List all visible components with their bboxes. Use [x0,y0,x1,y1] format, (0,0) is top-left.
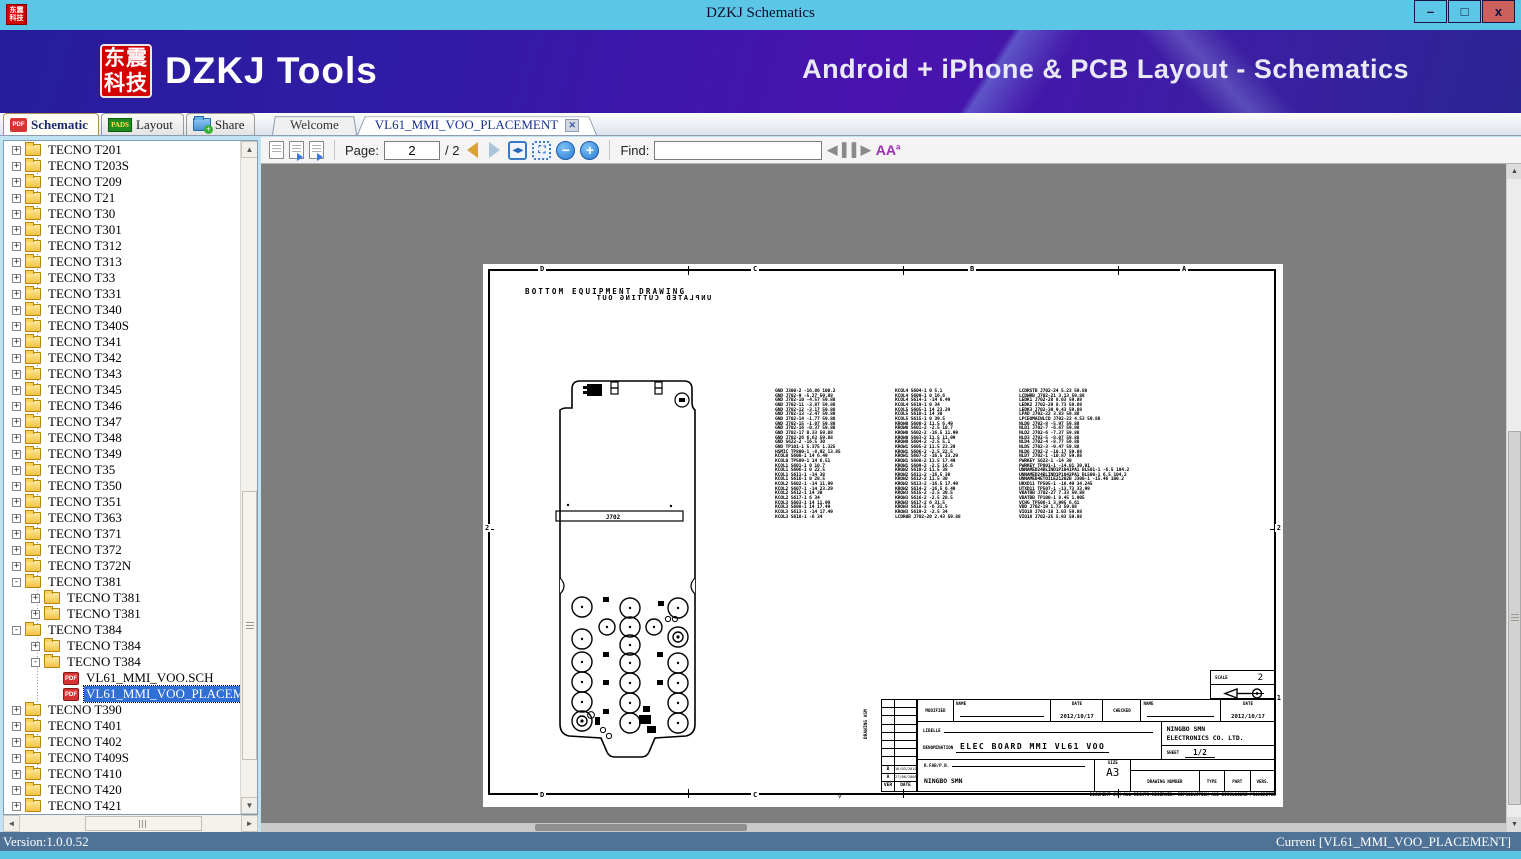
tree-item-label: TECNO T348 [46,430,124,446]
statusbar: Version:1.0.0.52 Current [VL61_MMI_VOO_P… [0,832,1521,851]
tree-expand-icon[interactable]: + [12,450,21,459]
folder-icon [25,304,41,316]
tab-schematic[interactable]: PDF Schematic [3,113,99,135]
tree-expand-icon[interactable]: + [12,386,21,395]
tree-expand-icon[interactable]: + [31,642,40,651]
tree-item-label: TECNO T384 [65,654,143,670]
tree-item[interactable]: +TECNO T313 [4,254,240,270]
titleblock-side-label: DRAWING ASM [864,709,869,739]
scale-value: 2 [1258,673,1263,683]
folder-icon [25,448,41,460]
rev-cell [882,749,895,756]
zone-label: C [751,265,759,273]
rev-cell [895,757,916,764]
titlebar: 东震科技 DZKJ Schematics – □ x [0,0,1521,30]
copy-page-icon[interactable] [289,141,304,159]
tree-item[interactable]: +TECNO T410 [4,766,240,782]
tree-item-label: TECNO T349 [46,446,124,462]
tree-item-label: TECNO T341 [46,334,124,350]
tree-collapse-icon[interactable]: - [12,578,21,587]
tree-item-label: TECNO T331 [46,286,124,302]
tree-item-label: TECNO T421 [46,798,124,814]
folder-icon [25,704,41,716]
tree-expand-icon[interactable]: + [12,354,21,363]
zone-label: 2 [483,524,491,532]
tree-expand-icon[interactable]: + [12,210,21,219]
tree-item[interactable]: +TECNO T341 [4,334,240,350]
tree-item[interactable]: +TECNO T384 [4,638,240,654]
pdf-toolbar: Page: / 2 ◂▸ ⛶ − + Find: ◀▐ ▌▶ AAa [261,137,1521,164]
rev-date: 16/03/2010 [895,766,916,773]
tree-item[interactable]: +TECNO T33 [4,270,240,286]
tree-item-label: VL61_MMI_VOO.SCH [84,670,215,686]
tree-item[interactable]: -TECNO T384 [4,622,240,638]
company-line1: NINGBO SMN [1167,725,1205,733]
title-block: B16/03/2010A27/08/2008VERDATE MODIFIED N… [881,699,1276,792]
tree-item[interactable]: +TECNO T340 [4,302,240,318]
viewer-horizontal-scrollbar[interactable] [261,823,1506,832]
tree-item[interactable]: +TECNO T390 [4,702,240,718]
banner: 东震科技 DZKJ Tools Android + iPhone & PCB L… [0,30,1521,113]
viewer-vscroll-thumb[interactable] [1508,431,1521,805]
zoom-in-button[interactable]: + [580,141,599,160]
company-line2: ELECTRONICS CO. LTD. [1167,734,1244,742]
tree-item-label: TECNO T201 [46,142,124,158]
revision-empty-row [882,749,916,757]
tree-item-label: TECNO T381 [46,574,124,590]
tree-item[interactable]: +TECNO T350 [4,478,240,494]
folder-icon [25,800,41,812]
zone-label: 1 [1275,694,1283,702]
tab-share-label: Share [215,117,245,133]
revision-row: A27/08/2008 [882,774,916,782]
tree-item[interactable]: +TECNO T340S [4,318,240,334]
rev-cell [895,716,916,723]
tree-expand-icon[interactable]: + [12,498,21,507]
checked-label: CHECKED [1113,708,1131,713]
tree-item-label: TECNO T340 [46,302,124,318]
date-label: DATE [1053,701,1100,706]
tree-expand-icon[interactable]: + [12,482,21,491]
folder-icon [25,768,41,780]
center-mark-icon: ▽ [837,791,842,801]
tree-scroll-up-icon[interactable]: ▲ [241,141,258,158]
tree-expand-icon[interactable]: + [12,530,21,539]
modified-label: MODIFIED [925,708,945,713]
tree-item-label: TECNO T312 [46,238,124,254]
folder-icon [25,576,41,588]
zone-label: B [968,265,976,273]
tree-rows: +TECNO T201+TECNO T203S+TECNO T209+TECNO… [4,142,240,814]
tree-item-label: TECNO T381 [65,590,143,606]
tree-item[interactable]: +TECNO T347 [4,414,240,430]
tree-expand-icon[interactable]: + [12,242,21,251]
tree-expand-icon[interactable]: + [12,434,21,443]
tree-item-label: TECNO T340S [46,318,131,334]
tree-item-label: TECNO T381 [65,606,143,622]
viewer-scroll-up-icon[interactable]: ▲ [1507,164,1521,179]
tree-item-label: TECNO T347 [46,414,124,430]
denomination-label: DENOMINATION [923,745,953,750]
placement-line: LCDR0B J702-20 2.43 59.88 [895,516,961,521]
page-number-input[interactable] [384,141,440,160]
tree-expand-icon[interactable]: + [12,802,21,811]
tree-item[interactable]: +TECNO T345 [4,382,240,398]
find-previous-icon[interactable]: ◀▐ [827,142,846,158]
rev-cell [895,708,916,715]
folder-icon [25,752,41,764]
tree-item[interactable]: +TECNO T346 [4,398,240,414]
folder-icon [25,224,41,236]
rfab-label: R.FAB/P.N. [924,763,949,768]
version-text: Version:1.0.0.52 [3,834,89,850]
rev-cell [882,725,895,732]
tree-item[interactable]: +TECNO T21 [4,190,240,206]
doc-tab-label: VL61_MMI_VOO_PLACEMENT [375,117,558,133]
tree-expand-icon[interactable]: + [12,178,21,187]
tab-schematic-label: Schematic [31,117,88,133]
tree-item-label: TECNO T209 [46,174,124,190]
tree-expand-icon[interactable]: + [12,258,21,267]
revision-empty-row [882,700,916,708]
tree-item-label: TECNO T203S [46,158,131,174]
revision-header-row: VERDATE [882,782,916,791]
tree-item-label: TECNO T384 [46,622,124,638]
tree-expand-icon[interactable]: + [12,754,21,763]
tree-horizontal-scrollbar[interactable]: ◄ ► [3,815,258,832]
folder-icon [25,240,41,252]
tree-item-label: TECNO T342 [46,350,124,366]
tree-expand-icon[interactable]: + [12,418,21,427]
tree-item[interactable]: +TECNO T209 [4,174,240,190]
tree-expand-icon[interactable]: + [31,610,40,619]
revision-empty-row [882,741,916,749]
doc-tab-welcome[interactable]: Welcome [272,115,357,135]
folder-icon [25,736,41,748]
tree-scroll-right-icon[interactable]: ► [241,815,258,832]
tree-expand-icon[interactable]: + [12,290,21,299]
drawing-page: DCBADC221 BOTTOM EQUIPMENT DRAWING UNPLA… [483,264,1283,807]
rev-cell [882,708,895,715]
tree-item-label: TECNO T363 [46,510,124,526]
rev-cell [895,749,916,756]
folder-icon [25,144,41,156]
zone-label: D [538,265,546,273]
tree-item-label: TECNO T35 [46,462,117,478]
folder-icon [25,336,41,348]
tree-item-label: TECNO T21 [46,190,117,206]
tree-item[interactable]: +TECNO T349 [4,446,240,462]
snapshot-page-icon[interactable] [309,141,324,159]
folder-icon [25,560,41,572]
tree-item-label: TECNO T30 [46,206,117,222]
bottom-strip [0,851,1521,859]
tree-item-label: TECNO T384 [65,638,143,654]
sheet-value: 1/2 [1185,748,1215,758]
brand-tagline: Android + iPhone & PCB Layout - Schemati… [802,54,1409,85]
folder-icon [25,432,41,444]
tree-item-label: TECNO T33 [46,270,117,286]
find-input[interactable] [654,141,822,160]
doc-tabs: WelcomeVL61_MMI_VOO_PLACEMENT✕ [272,115,597,135]
tree-item[interactable]: +TECNO T203S [4,158,240,174]
rev-cell [882,741,895,748]
folder-icon [25,400,41,412]
tree-item[interactable]: PDFVL61_MMI_VOO_PLACEMENT [4,686,240,702]
tree-expand-icon[interactable]: + [12,514,21,523]
tree-item[interactable]: +TECNO T201 [4,142,240,158]
placement-column: GND J300-2 -16.86 100.2GND J702-9 -5.27 … [775,390,841,520]
minimize-button[interactable]: – [1414,0,1447,23]
rev-cell [882,733,895,740]
vers-label: VERS. [1250,771,1275,791]
tree-item-label: TECNO T343 [46,366,124,382]
folder-icon [25,256,41,268]
drawing-mirrored-title: UNPLATED CUTTING OUT [595,294,711,302]
tree-expand-icon[interactable]: + [12,322,21,331]
pdf-file-icon: PDF [63,672,79,685]
folder-icon [25,416,41,428]
folder-icon [25,320,41,332]
tree-item-label: TECNO T420 [46,782,124,798]
tree-item[interactable]: +TECNO T30 [4,206,240,222]
rev-cell [882,757,895,764]
part-label: PART [1224,771,1249,791]
tree-item[interactable]: +TECNO T409S [4,750,240,766]
rev-cell [882,716,895,723]
tree-expand-icon[interactable]: + [12,162,21,171]
scale-box: SCALE 2 [1210,670,1276,699]
tree-item[interactable]: +TECNO T312 [4,238,240,254]
folder-icon [25,176,41,188]
revision-row: B16/03/2010 [882,766,916,774]
tree-expand-icon[interactable]: + [12,274,21,283]
placement-line: KCOL3 S618-1 -6 34 [775,516,841,521]
tree-item-label: TECNO T313 [46,254,124,270]
tree-item-label: TECNO T351 [46,494,124,510]
rev-cell [895,725,916,732]
pdf-file-icon: PDF [63,688,79,701]
tree-item[interactable]: +TECNO T372 [4,542,240,558]
close-tab-icon[interactable]: ✕ [565,119,579,132]
folder-icon [25,496,41,508]
size-label: SIZE [1108,760,1118,765]
tree-item[interactable]: +TECNO T35 [4,462,240,478]
tree-item[interactable]: PDFVL61_MMI_VOO.SCH [4,670,240,686]
tree-expand-icon[interactable]: + [12,466,21,475]
zone-label: D [538,791,546,799]
folder-icon [25,528,41,540]
folder-icon [25,544,41,556]
folder-icon [25,512,41,524]
prev-page-button[interactable] [467,142,478,158]
revision-empty-row [882,708,916,716]
viewer-scroll-down-icon[interactable]: ▼ [1507,817,1521,832]
tree-item-label: TECNO T301 [46,222,124,238]
tab-share[interactable]: Share [186,113,256,135]
tree-item[interactable]: +TECNO T381 [4,606,240,622]
folder-icon [25,192,41,204]
revision-empty-row [882,733,916,741]
pads-icon: PADS [108,118,132,132]
page-total: / 2 [445,143,459,158]
schematic-tree: +TECNO T201+TECNO T203S+TECNO T209+TECNO… [3,140,258,815]
tree-expand-icon[interactable]: + [12,786,21,795]
tree-item[interactable]: +TECNO T420 [4,782,240,798]
find-next-icon[interactable]: ▌▶ [852,142,871,158]
tab-layout-label: Layout [136,117,173,133]
zone-label: 2 [1275,524,1283,532]
tree-collapse-icon[interactable]: - [12,626,21,635]
tree-item[interactable]: -TECNO T381 [4,574,240,590]
tree-item[interactable]: +TECNO T421 [4,798,240,814]
tree-expand-icon[interactable]: + [12,546,21,555]
rev-date: 27/08/2008 [895,774,916,781]
tree-item[interactable]: +TECNO T301 [4,222,240,238]
folder-icon [25,624,41,636]
folder-icon [44,656,60,668]
tree-expand-icon[interactable]: + [12,770,21,779]
viewer-hscroll-thumb[interactable] [535,824,747,831]
zone-label: A [1180,265,1188,273]
tree-expand-icon[interactable]: + [12,338,21,347]
sidebar: +TECNO T201+TECNO T203S+TECNO T209+TECNO… [0,137,261,832]
tree-item[interactable]: -TECNO T384 [4,654,240,670]
tree-item[interactable]: +TECNO T342 [4,350,240,366]
drawing-number-label: DRAWING NUMBER [1131,771,1198,791]
denomination-value: ELEC BOARD MMI VL61 VOO [956,742,1109,753]
tree-item[interactable]: +TECNO T372N [4,558,240,574]
tab-layout[interactable]: PADS Layout [101,113,184,135]
checked-date: 2012/10/17 [1223,714,1273,720]
tree-item-label: TECNO T346 [46,398,124,414]
copyright-note: DOCUMENT SMN ALL RIGHTS RESERVED. REPROD… [881,793,1276,798]
folder-icon [25,352,41,364]
folder-icon [25,720,41,732]
placement-line: VIO18 J702-25 5.93 59.88 [1019,516,1129,521]
revision-table: B16/03/2010A27/08/2008VERDATE [881,699,917,792]
find-label: Find: [620,143,649,158]
maximize-button[interactable]: □ [1448,0,1481,23]
doc-tab-vl61_mmi_voo_placement[interactable]: VL61_MMI_VOO_PLACEMENT✕ [357,115,597,135]
fit-page-button[interactable]: ⛶ [532,141,551,160]
pdf-icon: PDF [10,118,27,132]
svg-text:J702: J702 [606,514,621,521]
revision-empty-row [882,716,916,724]
tree-expand-icon[interactable]: + [12,738,21,747]
folder-icon [44,592,60,604]
tree-expand-icon[interactable]: + [12,562,21,571]
tree-item-label: TECNO T410 [46,766,124,782]
folder-icon [25,288,41,300]
tree-expand-icon[interactable]: + [12,706,21,715]
size-value: A3 [1106,766,1119,779]
rev-letter: B [882,766,895,773]
tree-item-label: TECNO T409S [46,750,131,766]
fit-width-button[interactable]: ◂▸ [508,141,527,160]
tree-item-label: TECNO T371 [46,526,124,542]
tree-item[interactable]: +TECNO T402 [4,734,240,750]
brand-logo-icon: 东震科技 [100,44,152,98]
font-size-icon[interactable]: AAa [876,142,901,158]
window-title: DZKJ Schematics [0,5,1521,22]
zone-label: C [751,791,759,799]
date-col-label: DATE [895,782,916,791]
tree-vertical-scrollbar[interactable]: ▲ ▼ [240,141,257,814]
modified-date: 2012/10/17 [1053,714,1100,720]
revision-empty-row [882,757,916,765]
folder-icon [25,160,41,172]
brand-logo-line1: 东震 [104,47,148,70]
rev-cell [895,700,916,707]
ver-label: VER [882,782,895,791]
tree-item-label: TECNO T350 [46,478,124,494]
tree-expand-icon[interactable]: + [12,146,21,155]
folder-icon [25,464,41,476]
page-label: Page: [345,143,379,158]
folder-icon [25,272,41,284]
tree-item[interactable]: +TECNO T343 [4,366,240,382]
tree-expand-icon[interactable]: + [12,370,21,379]
next-page-button[interactable] [489,142,500,158]
tree-expand-icon[interactable]: + [12,194,21,203]
folder-icon [25,784,41,796]
app-window: 东震科技 DZKJ Schematics – □ x 东震科技 DZKJ Too… [0,0,1521,859]
tree-item[interactable]: +TECNO T331 [4,286,240,302]
tree-item[interactable]: +TECNO T351 [4,494,240,510]
tree-scroll-thumb[interactable] [242,491,257,760]
tree-item[interactable]: +TECNO T348 [4,430,240,446]
share-folder-icon [193,118,211,131]
tree-item-label: TECNO T402 [46,734,124,750]
tree-scroll-left-icon[interactable]: ◄ [3,815,20,832]
folder-icon [44,608,60,620]
tree-expand-icon[interactable]: + [12,722,21,731]
pcb-outline-drawing: J702 [543,372,713,772]
maker-name: NINGBO SMN [924,777,1088,788]
tab-bar: PDF Schematic PADS Layout Share WelcomeV… [0,113,1521,136]
brand-logo-line2: 科技 [104,72,148,95]
export-page-icon[interactable] [269,141,284,159]
tree-hscroll-thumb[interactable] [85,816,202,831]
tree-expand-icon[interactable]: + [12,226,21,235]
revision-empty-row [882,725,916,733]
folder-icon [25,208,41,220]
tree-item[interactable]: +TECNO T401 [4,718,240,734]
tree-item[interactable]: +TECNO T381 [4,590,240,606]
tree-item[interactable]: +TECNO T371 [4,526,240,542]
zoom-out-button[interactable]: − [556,141,575,160]
placement-column: LCDRSTB J702-24 5.23 59.88LCDWRB J702-21… [1019,390,1129,520]
rev-cell [882,700,895,707]
tree-item-label: TECNO T390 [46,702,124,718]
tree-scroll-down-icon[interactable]: ▼ [241,797,258,814]
viewer-vertical-scrollbar[interactable]: ▲ ▼ [1506,164,1521,832]
document-viewer: DCBADC221 BOTTOM EQUIPMENT DRAWING UNPLA… [261,164,1506,832]
tree-collapse-icon[interactable]: - [31,658,40,667]
sheet-label: SHEET [1167,750,1180,755]
libelle-label: LIBELLE [923,728,941,733]
tree-item-label: TECNO T372N [46,558,133,574]
close-button[interactable]: x [1482,0,1515,23]
tree-item-label: TECNO T372 [46,542,124,558]
tree-expand-icon[interactable]: + [31,594,40,603]
doc-tab-label: Welcome [290,117,339,133]
date-label-2: DATE [1223,701,1273,706]
tree-item[interactable]: +TECNO T363 [4,510,240,526]
tree-expand-icon[interactable]: + [12,402,21,411]
tree-expand-icon[interactable]: + [12,306,21,315]
